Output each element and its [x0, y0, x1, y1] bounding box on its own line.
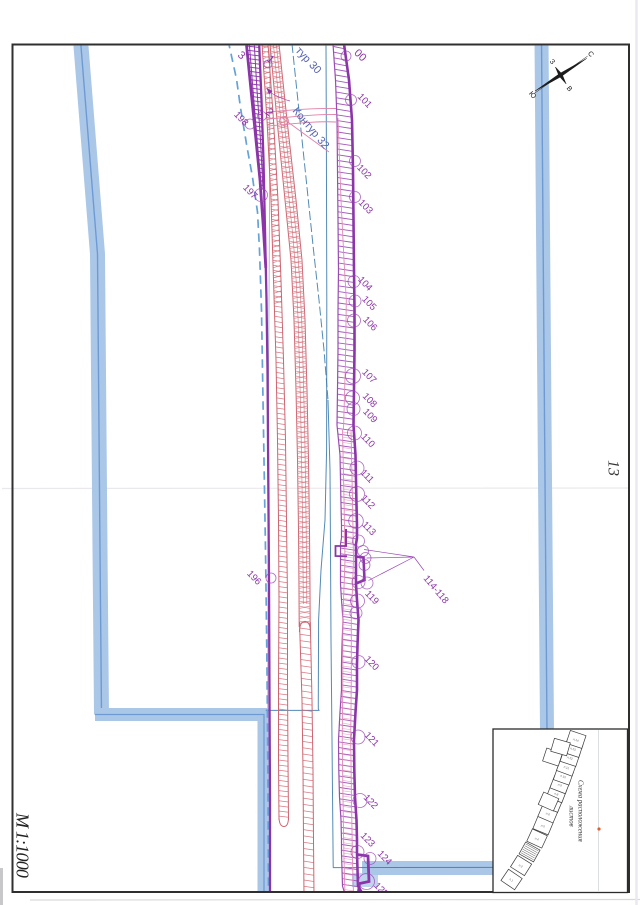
svg-text:13: 13: [605, 460, 622, 476]
svg-text:Схема расположения: Схема расположения: [577, 780, 584, 842]
svg-text:листов: листов: [568, 805, 575, 827]
svg-text:М 1:1000: М 1:1000: [13, 812, 33, 878]
